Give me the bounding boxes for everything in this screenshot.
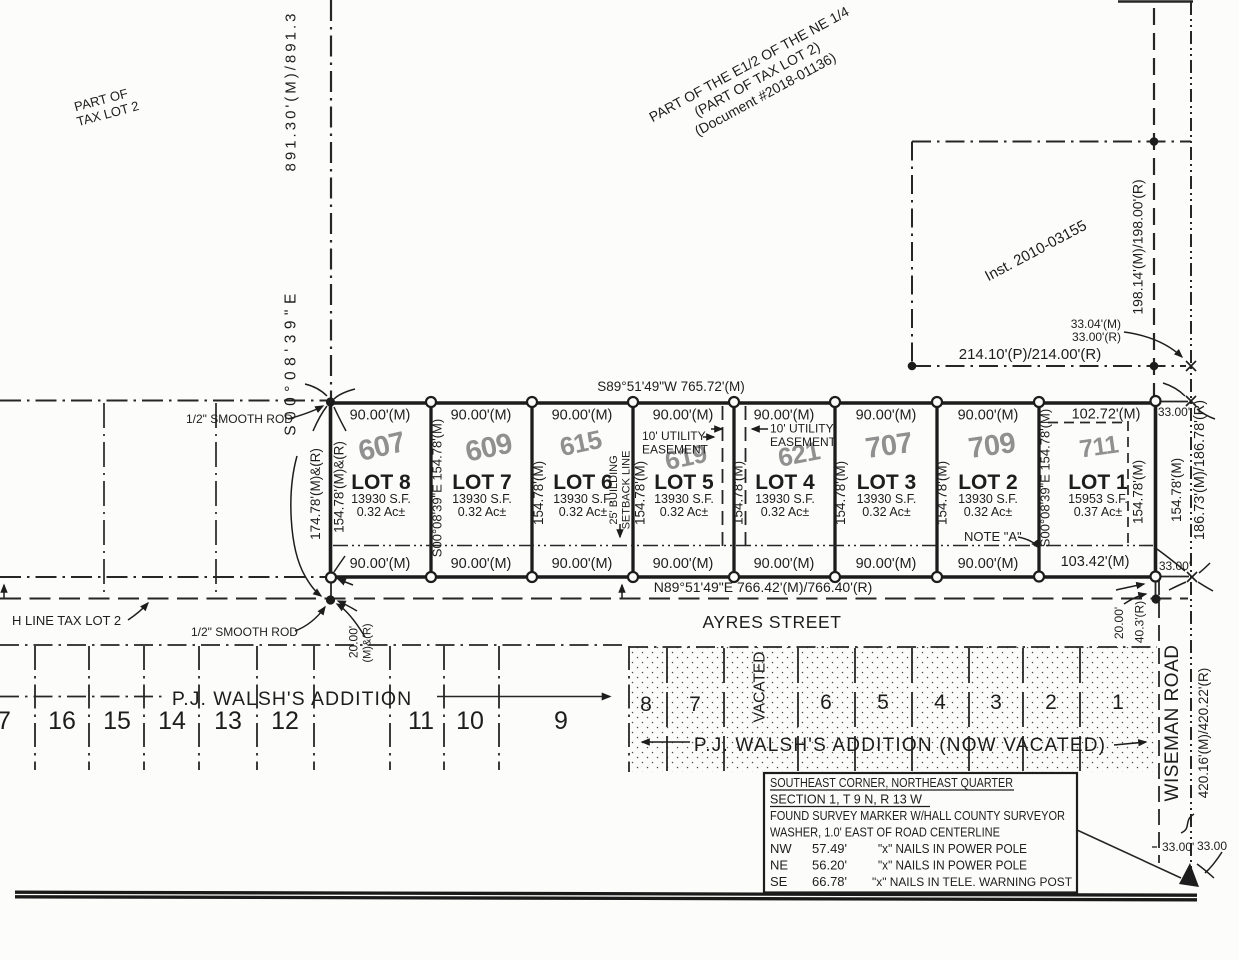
svg-text:13: 13	[214, 707, 242, 735]
svg-text:VACATED: VACATED	[752, 652, 769, 723]
svg-text:90.00'(M): 90.00'(M)	[451, 408, 512, 424]
svg-text:10' UTILITY: 10' UTILITY	[642, 429, 706, 443]
svg-text:LOT 2: LOT 2	[958, 471, 1018, 494]
svg-text:9: 9	[554, 707, 568, 735]
svg-text:LOT 7: LOT 7	[452, 471, 512, 494]
svg-text:10: 10	[456, 707, 484, 735]
svg-text:"x" NAILS IN POWER POLE: "x" NAILS IN POWER POLE	[878, 859, 1027, 873]
svg-text:102.72'(M): 102.72'(M)	[1072, 407, 1141, 423]
svg-text:13930 S.F.: 13930 S.F.	[654, 492, 714, 506]
svg-text:198.14'(M)/198.00'(R): 198.14'(M)/198.00'(R)	[1130, 179, 1146, 314]
svg-text:SECTION 1, T 9 N, R 13 W: SECTION 1, T 9 N, R 13 W	[770, 792, 923, 807]
svg-text:13930 S.F.: 13930 S.F.	[452, 492, 512, 506]
svg-text:S00°08'39"E 154.78'(M): S00°08'39"E 154.78'(M)	[1038, 409, 1053, 547]
svg-text:10' UTILITY: 10' UTILITY	[770, 422, 834, 436]
svg-text:2: 2	[1045, 691, 1057, 714]
svg-text:1/2" SMOOTH ROD: 1/2" SMOOTH ROD	[186, 412, 293, 426]
svg-text:8: 8	[640, 693, 652, 716]
svg-text:891.30'(M)/891.3: 891.30'(M)/891.3	[283, 11, 300, 172]
svg-text:40.3'(R): 40.3'(R)	[1133, 601, 1147, 643]
svg-text:66.78': 66.78'	[812, 874, 847, 889]
svg-text:420.16'(M)/420.22'(R): 420.16'(M)/420.22'(R)	[1196, 668, 1211, 798]
svg-text:EASEMENT: EASEMENT	[642, 443, 709, 457]
svg-text:FOUND SURVEY MARKER W/HALL COU: FOUND SURVEY MARKER W/HALL COUNTY SURVEY…	[770, 809, 1065, 823]
svg-text:33.00: 33.00	[1197, 839, 1227, 853]
svg-text:13930 S.F.: 13930 S.F.	[553, 492, 613, 506]
svg-text:"x" NAILS IN POWER POLE: "x" NAILS IN POWER POLE	[878, 842, 1027, 856]
svg-text:13930 S.F.: 13930 S.F.	[351, 492, 411, 506]
svg-text:0.32 Ac±: 0.32 Ac±	[559, 505, 608, 519]
svg-text:0.32 Ac±: 0.32 Ac±	[660, 505, 709, 519]
svg-text:90.00'(M): 90.00'(M)	[552, 556, 613, 572]
svg-text:709: 709	[966, 427, 1017, 465]
svg-text:4: 4	[934, 691, 946, 714]
svg-text:154.78'(M): 154.78'(M)	[731, 461, 746, 525]
svg-text:90.00'(M): 90.00'(M)	[754, 556, 815, 572]
svg-text:90.00'(M): 90.00'(M)	[552, 408, 613, 424]
svg-text:S00°08'39"E 154.78'(M): S00°08'39"E 154.78'(M)	[430, 419, 445, 557]
svg-text:1/2" SMOOTH ROD: 1/2" SMOOTH ROD	[191, 625, 298, 639]
svg-text:103.42'(M): 103.42'(M)	[1061, 554, 1130, 570]
svg-text:14: 14	[158, 707, 186, 735]
svg-text:N89°51'49"E 766.42'(M)/766.40: N89°51'49"E 766.42'(M)/766.40'(R)	[654, 579, 873, 595]
svg-text:154.78'(M)&(R): 154.78'(M)&(R)	[332, 441, 347, 533]
svg-text:0.32 Ac±: 0.32 Ac±	[357, 505, 406, 519]
svg-text:LOT 1: LOT 1	[1068, 471, 1128, 494]
svg-text:154.78'(M): 154.78'(M)	[935, 461, 950, 525]
svg-text:90.00'(M): 90.00'(M)	[653, 408, 714, 424]
svg-text:711: 711	[1078, 430, 1121, 463]
svg-text:16: 16	[48, 707, 76, 735]
svg-text:90.00'(M): 90.00'(M)	[856, 556, 917, 572]
svg-text:13930 S.F.: 13930 S.F.	[857, 492, 917, 506]
svg-text:174.78'(M)&(R): 174.78'(M)&(R)	[308, 448, 323, 540]
svg-text:154.78'(M): 154.78'(M)	[1131, 460, 1146, 524]
svg-text:0.32 Ac±: 0.32 Ac±	[964, 505, 1013, 519]
svg-text:WISEMAN ROAD: WISEMAN ROAD	[1162, 645, 1183, 802]
svg-text:33.00': 33.00'	[1158, 405, 1190, 419]
svg-text:15953 S.F.: 15953 S.F.	[1068, 492, 1128, 506]
svg-text:154.78'(M): 154.78'(M)	[833, 461, 848, 525]
svg-text:90.00'(M): 90.00'(M)	[856, 408, 917, 424]
svg-text:6: 6	[820, 691, 832, 714]
svg-text:NW: NW	[770, 841, 792, 856]
svg-text:90.00'(M): 90.00'(M)	[451, 556, 512, 572]
svg-text:LOT 5: LOT 5	[654, 471, 714, 494]
svg-text:154.78'(M): 154.78'(M)	[531, 461, 546, 525]
svg-text:SETBACK LINE: SETBACK LINE	[621, 451, 633, 530]
svg-text:0.32 Ac±: 0.32 Ac±	[761, 505, 810, 519]
svg-text:(M)&(R): (M)&(R)	[362, 623, 374, 662]
svg-text:33.00': 33.00'	[1159, 559, 1191, 573]
svg-text:90.00'(M): 90.00'(M)	[350, 556, 411, 572]
svg-text:186.73'(M)/186.78'(R): 186.73'(M)/186.78'(R)	[1192, 400, 1208, 540]
svg-text:154.78'(M): 154.78'(M)	[633, 461, 648, 525]
svg-text:33.00'(R): 33.00'(R)	[1072, 330, 1121, 344]
svg-text:WASHER, 1.0' EAST OF ROAD CENT: WASHER, 1.0' EAST OF ROAD CENTERLINE	[770, 825, 1000, 840]
svg-text:NE: NE	[770, 858, 788, 873]
svg-text:15: 15	[103, 707, 131, 735]
svg-text:0.32 Ac±: 0.32 Ac±	[862, 505, 911, 519]
svg-text:154.78'(M): 154.78'(M)	[1169, 458, 1184, 522]
svg-text:33.04'(M): 33.04'(M)	[1071, 317, 1121, 331]
svg-text:SE: SE	[770, 874, 788, 889]
svg-text:214.10'(P)/214.00'(R): 214.10'(P)/214.00'(R)	[959, 346, 1101, 363]
svg-text:SOUTHEAST CORNER, NORTHEAST QU: SOUTHEAST CORNER, NORTHEAST QUARTER	[770, 775, 1013, 790]
svg-text:EASEMENT: EASEMENT	[770, 435, 837, 449]
svg-text:20.00': 20.00'	[347, 626, 361, 658]
svg-text:LOT 3: LOT 3	[857, 471, 917, 494]
svg-text:90.00'(M): 90.00'(M)	[653, 556, 714, 572]
svg-text:5: 5	[877, 691, 889, 714]
svg-text:12: 12	[271, 707, 299, 735]
svg-text:56.20': 56.20'	[812, 858, 847, 873]
svg-text:1: 1	[1112, 691, 1124, 714]
svg-text:3: 3	[990, 691, 1002, 714]
svg-text:H LINE TAX LOT 2: H LINE TAX LOT 2	[12, 613, 121, 628]
svg-text:90.00'(M): 90.00'(M)	[958, 408, 1019, 424]
svg-text:AYRES STREET: AYRES STREET	[702, 612, 841, 632]
svg-text:90.00'(M): 90.00'(M)	[958, 556, 1019, 572]
svg-text:13930 S.F.: 13930 S.F.	[755, 492, 815, 506]
svg-text:0.32 Ac±: 0.32 Ac±	[458, 505, 507, 519]
svg-text:"x" NAILS IN TELE. WARNING POS: "x" NAILS IN TELE. WARNING POST	[872, 875, 1073, 889]
svg-text:0.37 Ac±: 0.37 Ac±	[1074, 505, 1123, 519]
svg-text:NOTE "A": NOTE "A"	[964, 529, 1022, 544]
svg-text:7: 7	[689, 693, 701, 716]
svg-text:S89°51'49"W 765.72'(M): S89°51'49"W 765.72'(M)	[597, 379, 744, 394]
svg-text:90.00'(M): 90.00'(M)	[350, 408, 411, 424]
svg-text:LOT 6: LOT 6	[553, 471, 613, 494]
svg-text:33.00': 33.00'	[1162, 840, 1194, 854]
svg-text:57.49': 57.49'	[812, 841, 847, 856]
svg-text:7: 7	[0, 707, 11, 735]
svg-text:13930 S.F.: 13930 S.F.	[958, 492, 1018, 506]
svg-text:LOT 4: LOT 4	[755, 471, 815, 494]
svg-text:20.00': 20.00'	[1112, 607, 1126, 639]
svg-text:P.J. WALSH'S ADDITION (NOW VAC: P.J. WALSH'S ADDITION (NOW VACATED)	[694, 735, 1106, 756]
svg-text:25' BUILDING: 25' BUILDING	[608, 455, 620, 524]
svg-text:707: 707	[863, 427, 914, 465]
svg-text:LOT 8: LOT 8	[351, 471, 411, 494]
svg-text:11: 11	[408, 707, 434, 735]
